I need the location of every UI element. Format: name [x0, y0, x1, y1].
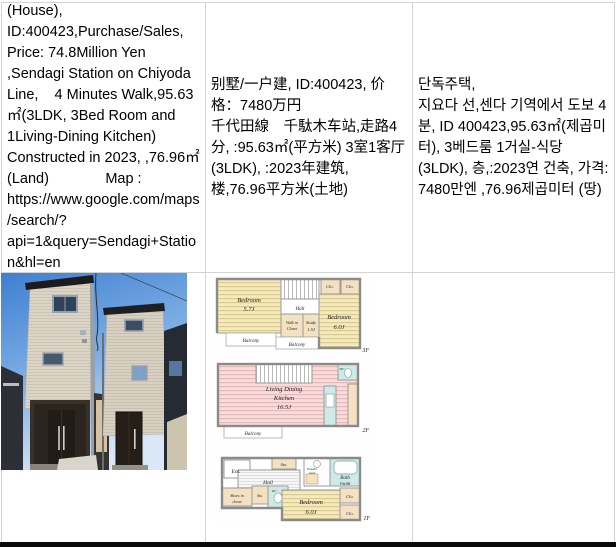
exterior-photo-image [1, 273, 187, 470]
1f-bath-label-2: room [340, 482, 351, 487]
listing-text-english: (House), ID:400423,Purchase/Sales, Price… [7, 1, 200, 274]
3f-floor-label: 3F [361, 348, 369, 354]
left-neighbor-building [1, 366, 23, 470]
listing-text-cell-korean: 단독주택, 지요다 선,센다 기역에서 도보 4분, ID 400423,95.… [413, 3, 614, 272]
floor-3f-plan: Bedroom 5.7J Hall Clo. Clo. Walk in Clos… [217, 279, 369, 354]
2f-balcony-label: Balcony [245, 432, 262, 437]
1f-wc-label: WC [271, 489, 277, 493]
floor-2f-plan: Living Dining Kitchen 16.5J WC Balcony 2… [218, 364, 369, 438]
3f-balcony1-label: Balcony [243, 339, 260, 344]
2f-ldk-label-1: Living Dining [265, 386, 303, 393]
2f-wc-label: WC [339, 367, 345, 371]
3f-hall-label: Hall [295, 307, 306, 312]
2f-floor-label: 2F [362, 428, 369, 434]
2f-ldk-label-2: Kitchen [273, 395, 294, 402]
1f-shoes-label-1: Shoes in [230, 493, 243, 498]
1f-hall-label: Hall [262, 480, 273, 486]
1f-bathtub [334, 461, 357, 474]
3f-wic-label-1: Walk in [286, 320, 298, 325]
3f-balcony2-label: Balcony [289, 343, 306, 348]
1f-clo1-label: Clo. [346, 494, 354, 499]
left-house [25, 275, 96, 470]
3f-wic-label-2: Closet [287, 326, 298, 331]
2f-stairs [256, 364, 312, 383]
1f-bath-label-1: Bath [340, 476, 350, 481]
1f-ent-label: Ent. [230, 469, 240, 475]
1f-shoes-label-2: closet [232, 499, 242, 504]
2f-cabinet [348, 384, 358, 426]
1f-toilet [274, 493, 282, 503]
3f-clo1-label: Clo. [326, 284, 334, 289]
2f-toilet [345, 369, 352, 378]
3f-bedroom1-label: Bedroom [237, 297, 261, 304]
3f-study-size: 1.5J [307, 327, 316, 332]
property-listing-page: (House), ID:400423,Purchase/Sales, Price… [0, 0, 616, 547]
3f-study [303, 314, 319, 337]
floorplan-image: Bedroom 5.7J Hall Clo. Clo. Walk in Clos… [212, 274, 372, 522]
listing-text-cell-chinese: 别墅/一户建, ID:400423, 价格：7480万円 千代田線 千駄木车站,… [206, 3, 412, 272]
1f-sto2-label: Sto. [257, 493, 263, 498]
listing-text-chinese: 别墅/一户建, ID:400423, 价格：7480万円 千代田線 千駄木车站,… [211, 75, 407, 201]
listing-text-korean: 단독주택, 지요다 선,센다 기역에서 도보 4분, ID 400423,95.… [418, 75, 609, 201]
2f-ldk-size: 16.5J [277, 404, 292, 411]
listing-text-cell-english: (House), ID:400423,Purchase/Sales, Price… [2, 3, 205, 272]
3f-stairs [281, 279, 319, 299]
floorplan-svg: Bedroom 5.7J Hall Clo. Clo. Walk in Clos… [212, 274, 372, 522]
3f-study-label: Study [306, 320, 316, 325]
1f-floor-label: 1F [363, 516, 370, 522]
right-neighbor-building [164, 323, 187, 470]
3f-bedroom1-size: 5.7J [243, 306, 255, 313]
1f-powder-label-2: room [309, 471, 316, 475]
2f-sink [326, 394, 334, 407]
1f-clo2-label: Clo. [346, 511, 354, 516]
1f-bedroom-label: Bedroom [299, 499, 323, 506]
right-house-upper-window [125, 320, 143, 331]
3f-clo2-label: Clo. [346, 284, 354, 289]
bottom-bar [0, 542, 616, 547]
exterior-photo [1, 273, 187, 470]
3f-bedroom2-size: 6.0J [333, 324, 345, 331]
3f-bedroom-6-0j [319, 294, 360, 348]
floor-1f-plan: Ent. Hall Sto. Shoes in closet Sto. WC P… [222, 458, 370, 522]
1f-bedroom-size: 6.0J [305, 509, 317, 516]
3f-bedroom2-label: Bedroom [327, 314, 351, 321]
left-house-lower-window [43, 353, 63, 365]
1f-sto1-label: Sto. [281, 462, 288, 467]
